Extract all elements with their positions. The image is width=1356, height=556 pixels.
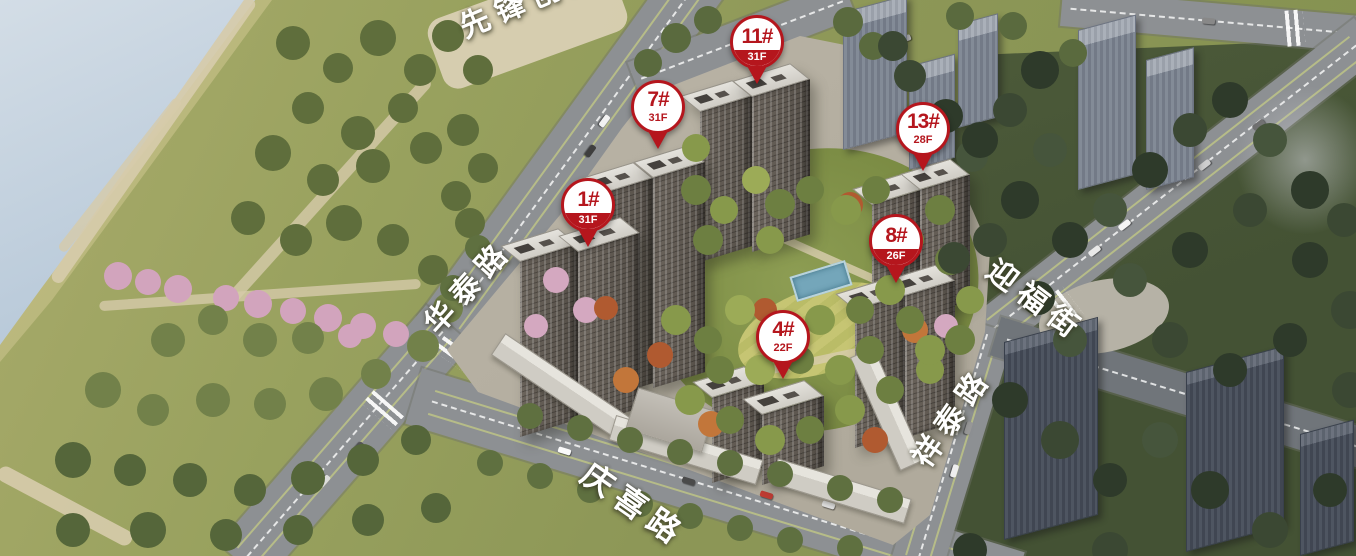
pin-floors: 31F [564,213,612,229]
park-path [0,464,135,549]
pin-circle: 4# 22F [756,310,810,364]
pin-number: 8# [872,225,920,247]
tower-11b [752,97,810,252]
context-building [1146,47,1194,190]
pin-circle: 1# 31F [561,178,615,232]
building-pin-11[interactable]: 11# 31F [730,15,784,84]
pin-number: 11# [733,26,781,48]
building-pin-4[interactable]: 4# 22F [756,310,810,379]
pin-number: 13# [899,111,947,133]
pin-circle: 8# 26F [869,214,923,268]
pin-floors: 31F [634,111,682,125]
crosswalk [1284,9,1305,46]
pin-floors: 31F [733,50,781,66]
park-path [226,76,434,305]
pin-number: 7# [634,89,682,111]
aerial-site-map: 先锋创意 华泰路 迎福街 祥泰路 庆喜路 11# 31F 7# 31F 13# … [0,0,1356,556]
pin-number: 1# [564,189,612,211]
pin-circle: 7# 31F [631,80,685,134]
pin-number: 4# [759,319,807,341]
context-building [1004,317,1098,540]
tower-7b [653,178,705,388]
building-pin-13[interactable]: 13# 28F [896,102,950,171]
pin-circle: 11# 31F [730,15,784,69]
tower-11a [700,112,752,262]
pin-floors: 28F [899,133,947,147]
car [1202,17,1215,24]
pin-floors: 26F [872,249,920,265]
context-building [1300,420,1354,556]
context-building [958,13,998,128]
pin-floors: 22F [759,341,807,355]
pin-circle: 13# 28F [896,102,950,156]
context-building [1186,346,1284,552]
park-path [99,279,421,311]
building-pin-7[interactable]: 7# 31F [631,80,685,149]
building-pin-8[interactable]: 8# 26F [869,214,923,283]
building-pin-1[interactable]: 1# 31F [561,178,615,247]
context-building [1078,14,1136,190]
atmosphere-haze [1235,85,1356,235]
